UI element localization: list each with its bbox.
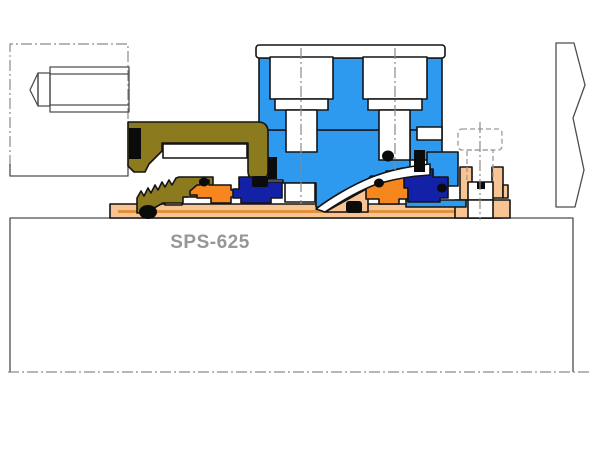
wedge-o-ring: [346, 201, 362, 213]
shaft-step-outline: [10, 163, 128, 176]
gland-groove-o-ring: [414, 150, 425, 172]
shank-o-ring: [382, 151, 394, 162]
sleeve-o-ring: [139, 205, 157, 219]
sleeve-accent-line: [118, 210, 498, 213]
collar-bolt-slot: [477, 182, 485, 189]
inboard-face-o-ring: [199, 178, 209, 187]
model-label: SPS-625: [170, 232, 250, 253]
pump-housing-box: [10, 218, 573, 372]
gland-set-screw: [268, 157, 277, 179]
end-wall-break-line: [556, 43, 585, 207]
outboard-face-o-ring: [374, 179, 384, 188]
gland-top-plate: [256, 45, 445, 58]
collar-set-screw: [129, 128, 141, 159]
gland-notch: [417, 127, 442, 140]
stationary-face-o-ring: [437, 184, 447, 193]
set-screw-outline: [30, 67, 129, 112]
collar-foot-screw: [252, 176, 268, 187]
gland-slot-block: [285, 183, 315, 202]
seal-cross-section-diagram: SPS-625: [0, 0, 600, 450]
collar-sliver: [503, 185, 508, 198]
collar-slot-band: [163, 144, 247, 158]
diagram-canvas: SPS-625: [0, 0, 600, 450]
